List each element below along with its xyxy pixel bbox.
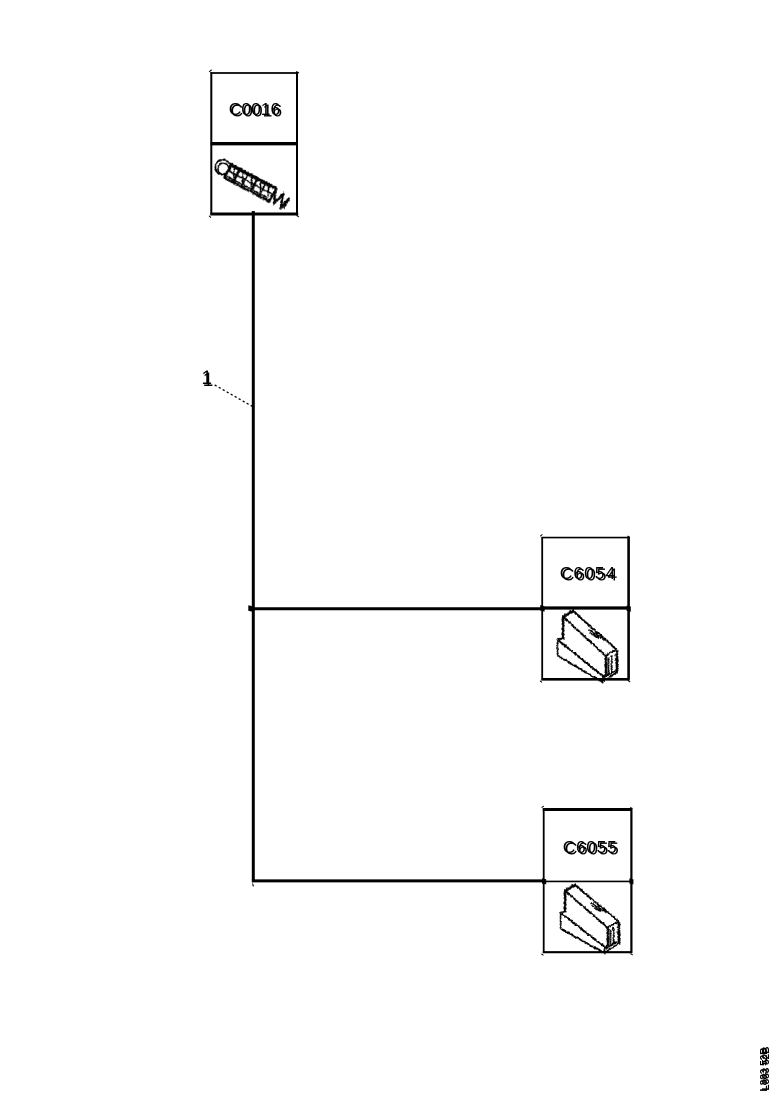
svg-text:L883 52B: L883 52B [761,1047,772,1091]
svg-text:C6054: C6054 [562,565,619,585]
svg-text:C0016: C0016 [231,101,283,121]
svg-text:C6055: C6055 [565,839,620,859]
svg-text:1: 1 [203,370,214,391]
